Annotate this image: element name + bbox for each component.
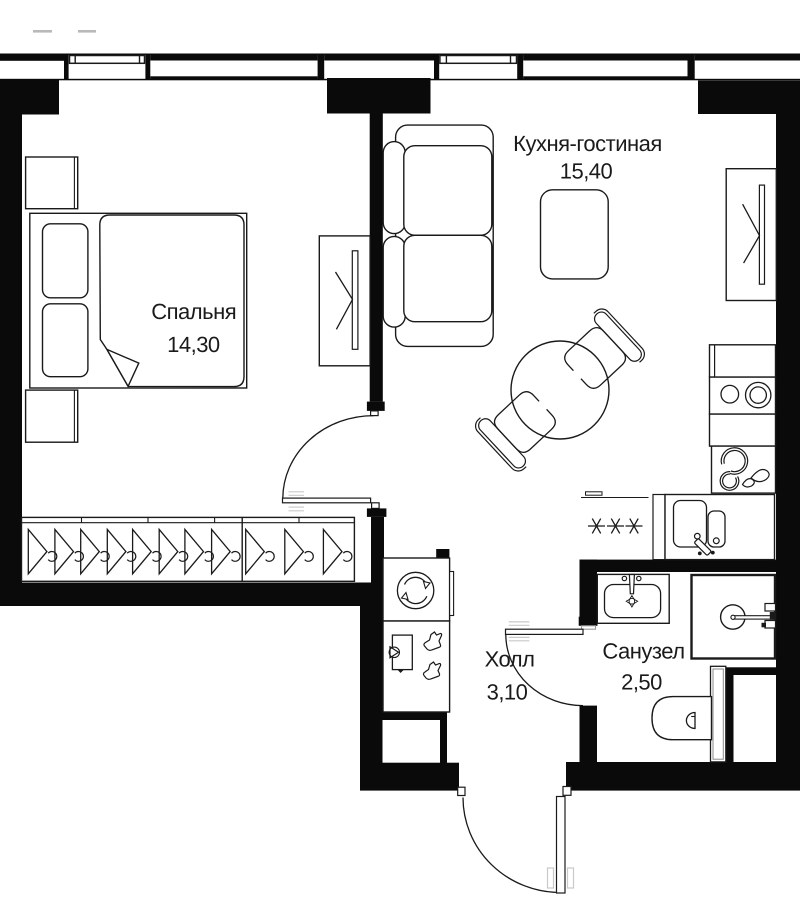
svg-text:Кухня-гостиная: Кухня-гостиная: [513, 131, 662, 156]
svg-text:2,50: 2,50: [621, 670, 662, 695]
svg-text:Спальня: Спальня: [151, 299, 236, 324]
svg-text:Санузел: Санузел: [602, 639, 684, 664]
svg-text:3,10: 3,10: [487, 680, 528, 705]
svg-text:Холл: Холл: [485, 647, 535, 672]
svg-text:14,30: 14,30: [167, 332, 220, 357]
svg-text:15,40: 15,40: [560, 159, 613, 184]
